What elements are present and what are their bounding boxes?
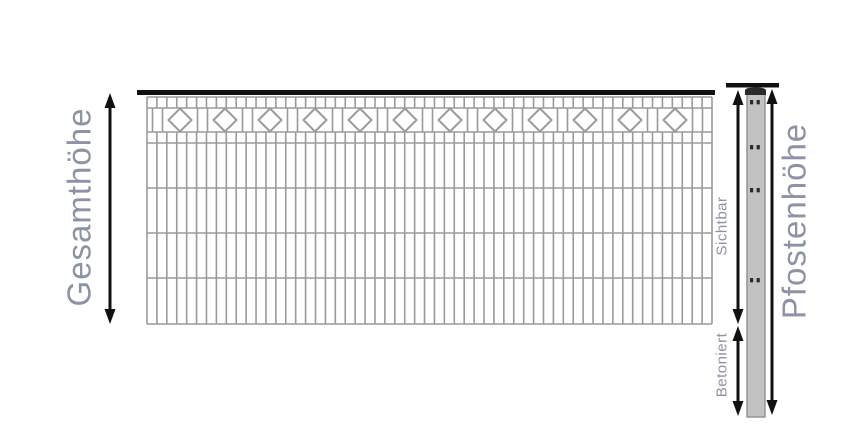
visible-height-label: Sichtbar bbox=[715, 196, 730, 255]
post-cap bbox=[745, 88, 766, 96]
fence-grid bbox=[147, 97, 712, 324]
betoniert-arrow bbox=[733, 326, 744, 416]
screw-hole-icon bbox=[757, 100, 760, 104]
screw-hole-icon bbox=[757, 188, 760, 192]
sichtbar-arrow bbox=[733, 90, 744, 324]
screw-hole-icon bbox=[750, 145, 753, 149]
gesamthoehe-arrow bbox=[105, 93, 116, 324]
total-height-label: Gesamthöhe bbox=[63, 108, 96, 307]
concreted-depth-label: Betoniert bbox=[715, 333, 730, 398]
fence-panel bbox=[137, 90, 715, 324]
post-height-label: Pfostenhöhe bbox=[778, 123, 811, 319]
fence-height-diagram: Gesamthöhe Sichtbar Betoniert Pfostenhöh… bbox=[0, 0, 850, 425]
post-top-rail bbox=[726, 83, 779, 88]
fence-top-rail bbox=[137, 90, 715, 95]
screw-hole-icon bbox=[757, 278, 760, 282]
post-body bbox=[747, 92, 765, 417]
screw-hole-icon bbox=[750, 188, 753, 192]
fence-diamond-ornaments bbox=[169, 109, 687, 132]
screw-hole-icon bbox=[750, 278, 753, 282]
screw-hole-icon bbox=[757, 145, 760, 149]
screw-hole-icon bbox=[750, 100, 753, 104]
